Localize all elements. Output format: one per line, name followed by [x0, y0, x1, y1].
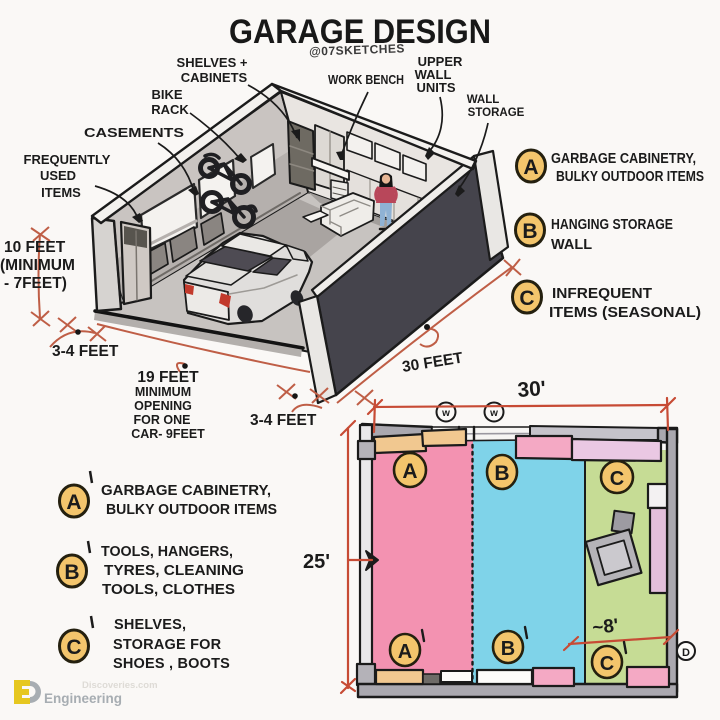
svg-text:B: B [494, 462, 509, 485]
svg-text:WORK BENCH: WORK BENCH [328, 72, 404, 87]
svg-text:ITEMS (SEASONAL): ITEMS (SEASONAL) [549, 305, 701, 321]
svg-text:SHELVES,: SHELVES, [114, 617, 186, 633]
svg-text:STORAGE FOR: STORAGE FOR [113, 637, 222, 653]
svg-text:(MINIMUM: (MINIMUM [0, 257, 75, 274]
svg-text:CAR- 9FEET: CAR- 9FEET [131, 427, 205, 441]
svg-text:Discoveries.com: Discoveries.com [82, 680, 158, 691]
svg-text:MINIMUM: MINIMUM [135, 385, 191, 399]
svg-text:ITEMS: ITEMS [41, 185, 81, 200]
svg-text:19 FEET: 19 FEET [137, 369, 199, 386]
svg-text:RACK: RACK [151, 102, 189, 117]
svg-text:D: D [682, 647, 690, 659]
svg-text:B: B [64, 561, 79, 584]
svg-text:TOOLS, HANGERS,: TOOLS, HANGERS, [101, 544, 233, 560]
svg-text:CABINETS: CABINETS [181, 70, 248, 85]
svg-text:w: w [441, 408, 450, 419]
svg-text:FOR ONE: FOR ONE [134, 413, 191, 427]
svg-text:WALL: WALL [467, 94, 500, 106]
svg-text:30': 30' [517, 377, 547, 402]
svg-text:TYRES, CLEANING: TYRES, CLEANING [104, 563, 244, 579]
svg-text:A: A [398, 641, 412, 663]
svg-text:TOOLS, CLOTHES: TOOLS, CLOTHES [102, 582, 235, 598]
svg-text:BULKY OUTDOOR ITEMS: BULKY OUTDOOR ITEMS [556, 169, 704, 185]
svg-text:- 7FEET): - 7FEET) [4, 275, 67, 292]
svg-text:SHOES , BOOTS: SHOES , BOOTS [113, 656, 230, 672]
svg-text:3-4 FEET: 3-4 FEET [250, 412, 317, 429]
svg-text:Engineering: Engineering [44, 691, 122, 706]
svg-text:C: C [66, 636, 81, 659]
svg-text:A: A [66, 491, 81, 514]
svg-text:GARBAGE CABINETRY,: GARBAGE CABINETRY, [101, 483, 271, 499]
svg-text:UNITS: UNITS [417, 80, 456, 95]
svg-text:3-4 FEET: 3-4 FEET [52, 343, 119, 360]
svg-text:GARBAGE CABINETRY,: GARBAGE CABINETRY, [551, 151, 696, 167]
svg-text:SHELVES +: SHELVES + [177, 55, 248, 70]
svg-text:25': 25' [303, 551, 330, 573]
svg-text:C: C [610, 468, 624, 490]
svg-text:HANGING STORAGE: HANGING STORAGE [551, 217, 673, 233]
svg-text:C: C [519, 287, 534, 310]
svg-text:BULKY OUTDOOR ITEMS: BULKY OUTDOOR ITEMS [106, 502, 277, 518]
svg-text:STORAGE: STORAGE [468, 107, 525, 119]
svg-text:~8': ~8' [591, 615, 619, 639]
svg-text:10 FEET: 10 FEET [4, 239, 66, 256]
svg-text:BIKE: BIKE [151, 87, 182, 102]
svg-text:B: B [522, 220, 537, 243]
svg-text:B: B [501, 638, 515, 660]
svg-text:A: A [523, 156, 538, 179]
svg-text:w: w [489, 408, 498, 419]
svg-text:USED: USED [40, 168, 76, 183]
svg-text:OPENING: OPENING [134, 399, 192, 413]
svg-text:A: A [402, 460, 417, 483]
svg-text:CASEMENTS: CASEMENTS [84, 125, 184, 140]
svg-text:INFREQUENT: INFREQUENT [552, 286, 652, 302]
svg-text:C: C [600, 653, 614, 675]
svg-text:WALL: WALL [551, 237, 592, 253]
svg-text:FREQUENTLY: FREQUENTLY [24, 152, 111, 167]
